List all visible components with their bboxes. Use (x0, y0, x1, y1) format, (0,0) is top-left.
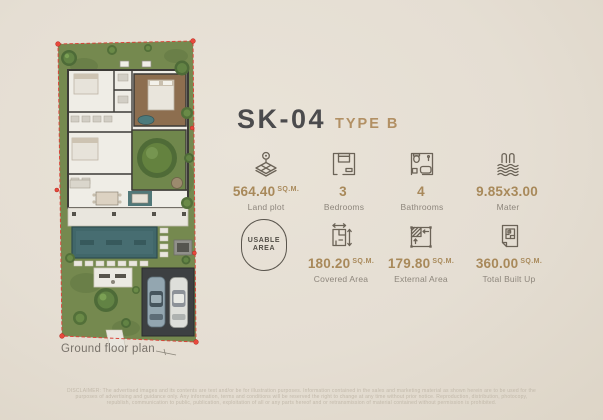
usable-area-line2: AREA (253, 245, 275, 254)
swimming-pool (72, 227, 157, 258)
usable-area-line1: USABLE (248, 237, 280, 246)
car-white (170, 278, 188, 328)
scale-marker (156, 349, 176, 355)
lounge-area (94, 268, 132, 287)
unit-title: SK-04 TYPE B (237, 104, 399, 135)
unit-model: SK-04 (237, 104, 326, 135)
pool-deck (68, 208, 188, 226)
total-built-up-value: 360.00SQ.M. (461, 256, 557, 271)
disclaimer: DISCLAIMER: The advertised images and it… (40, 388, 563, 407)
pool-size-label: Mater (460, 202, 556, 212)
spec-external-area: 179.80SQ.M. External Area (373, 217, 469, 284)
external-area-value: 179.80SQ.M. (373, 256, 469, 271)
usable-area-badge: USABLE AREA (241, 219, 287, 271)
car-blue (148, 277, 166, 327)
rattan-chair (172, 178, 183, 189)
spec-bathrooms: 4 Bathrooms (374, 145, 470, 212)
pool-icon (460, 145, 556, 179)
bathrooms-value: 4 (374, 184, 470, 199)
spec-pool-size: 9.85x3.00 Mater (460, 145, 556, 212)
bathrooms-label: Bathrooms (374, 202, 470, 212)
house (68, 61, 188, 208)
jacuzzi (138, 116, 154, 125)
pool-size-value: 9.85x3.00 (460, 184, 556, 199)
floor-plan-caption: Ground floor plan (61, 343, 155, 355)
external-area-icon (373, 217, 469, 251)
disclaimer-line3: republish, communication to public, publ… (40, 400, 563, 406)
brochure-page: Ground floor plan SK-04 TYPE B 564.40SQ.… (0, 0, 603, 420)
total-built-up-label: Total Built Up (461, 274, 557, 284)
external-area-label: External Area (373, 274, 469, 284)
unit-type: TYPE B (335, 116, 399, 132)
spec-total-built-up: 360.00SQ.M. Total Built Up (461, 217, 557, 284)
bathrooms-icon (374, 145, 470, 179)
total-built-up-icon (461, 217, 557, 251)
parking (142, 268, 194, 336)
ground-floor-plan (36, 28, 220, 360)
